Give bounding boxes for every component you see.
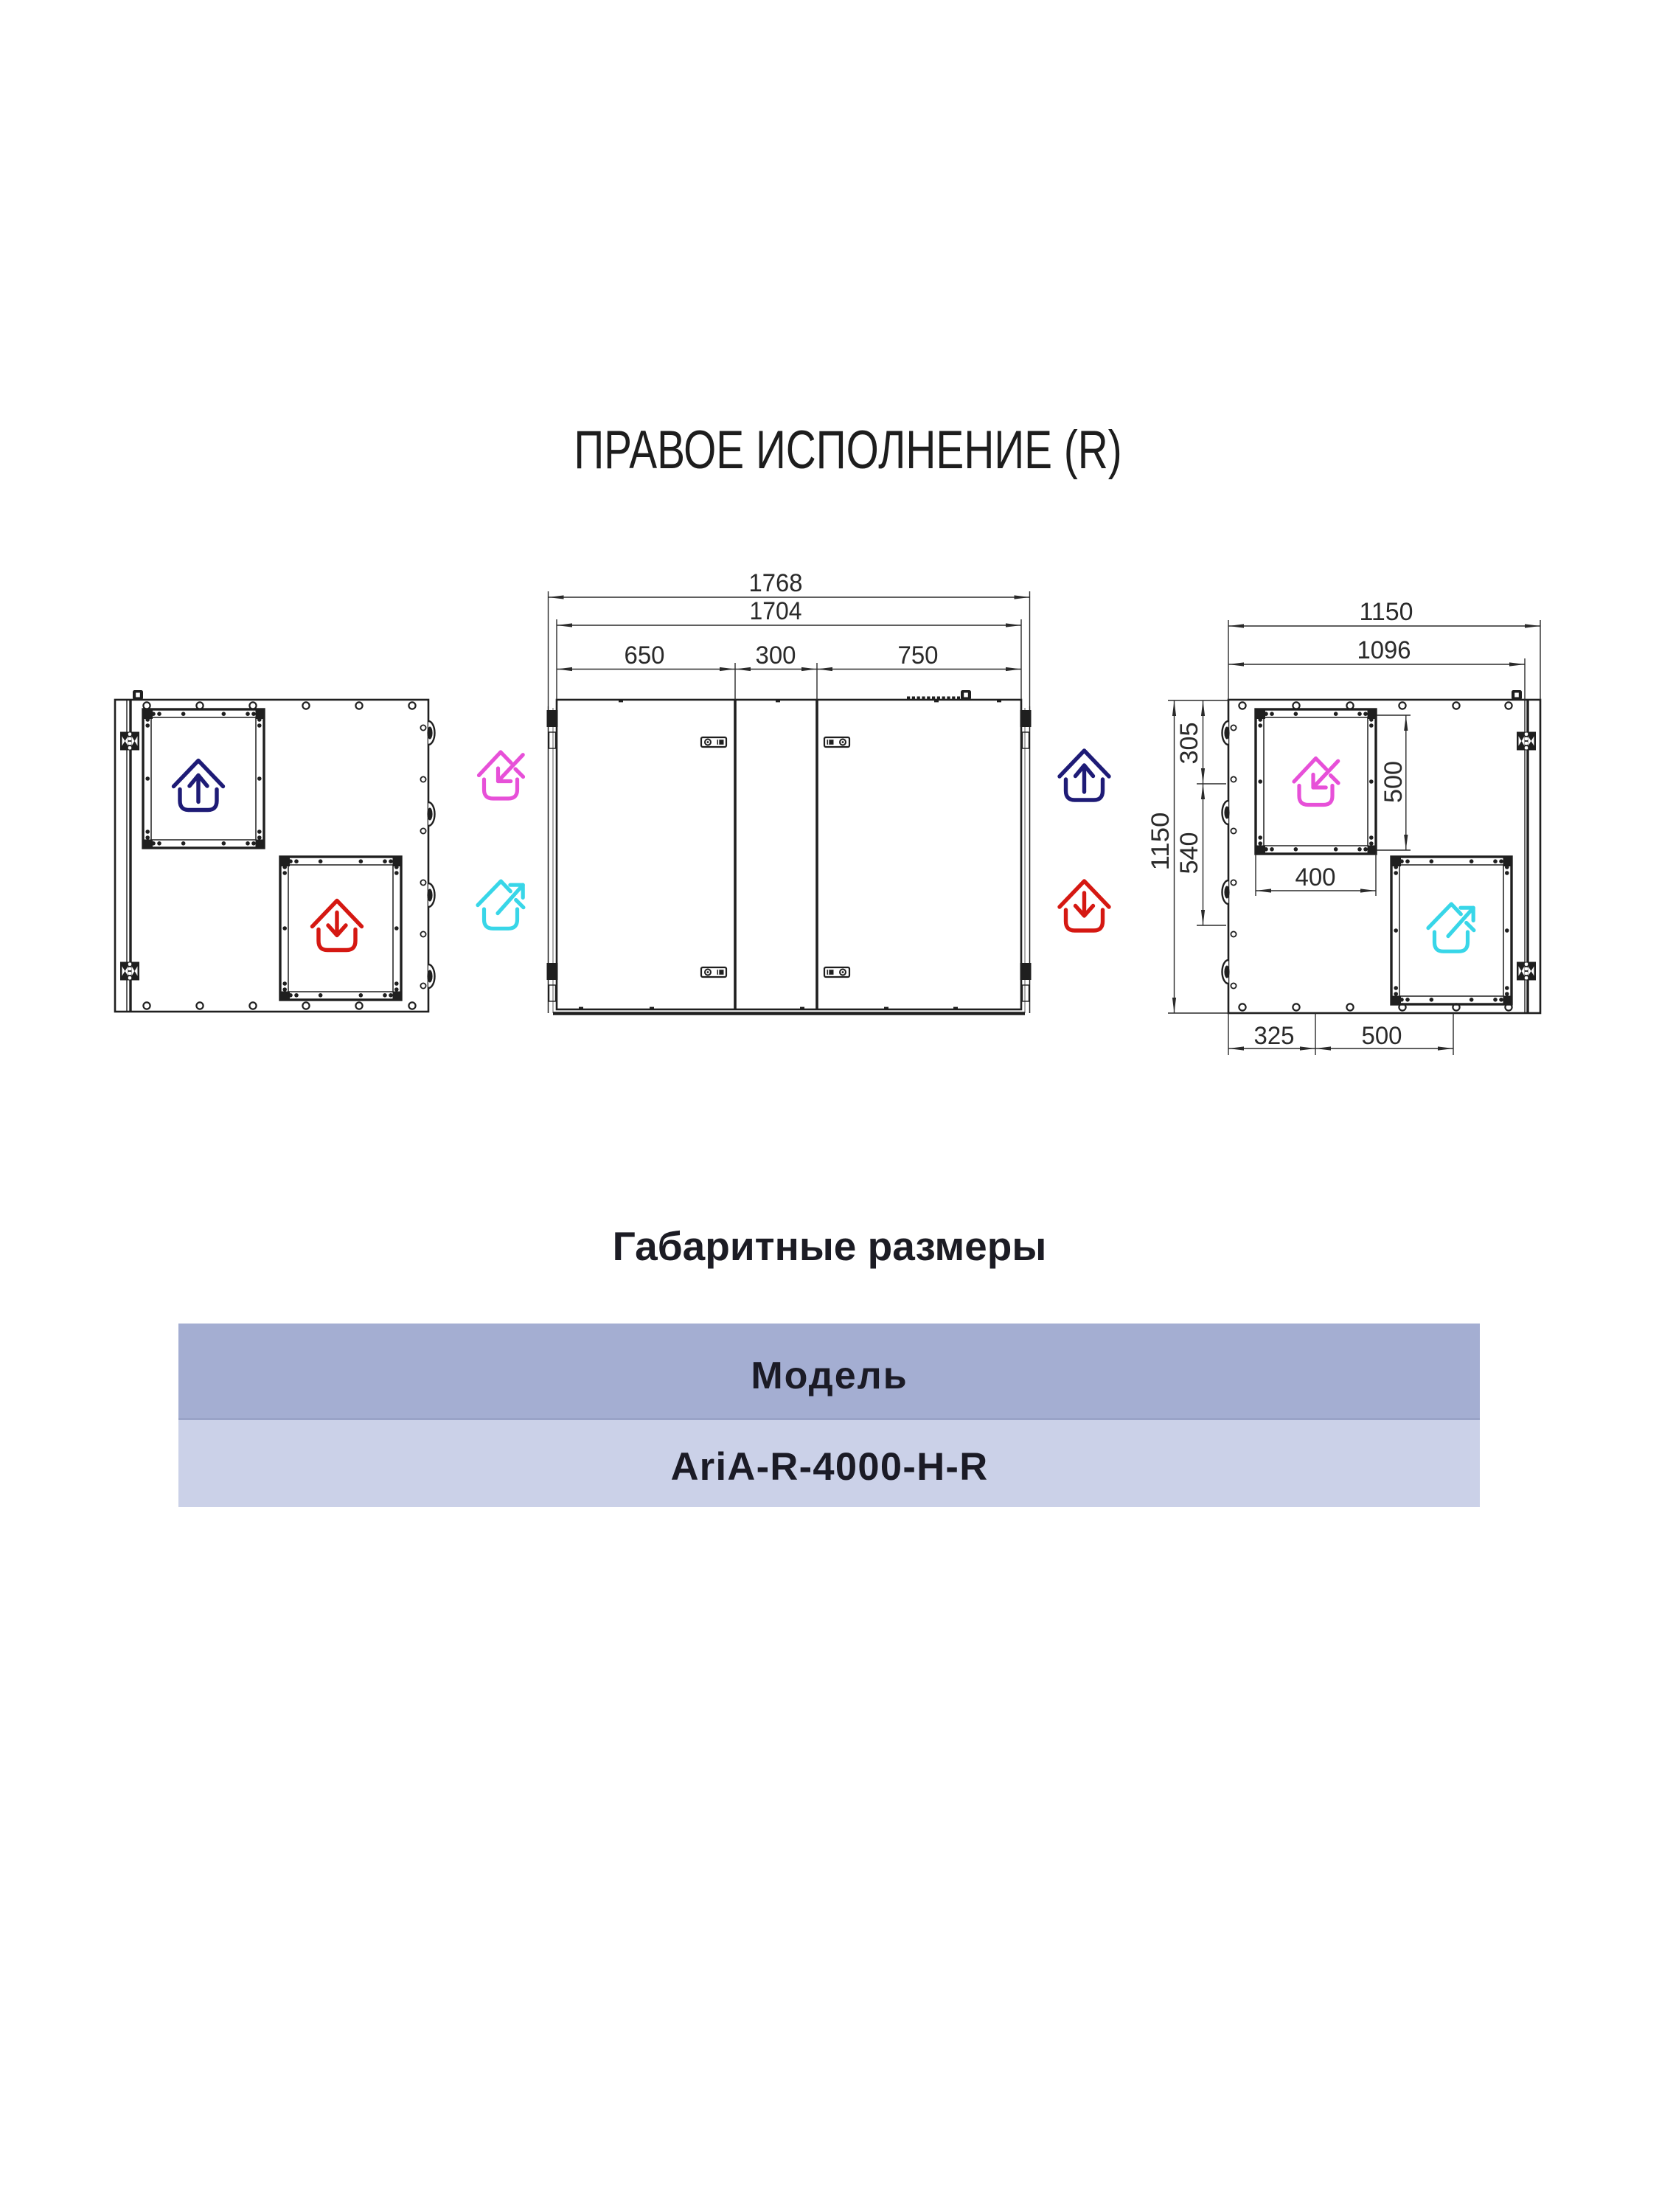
svg-text:750: 750 (898, 641, 939, 669)
svg-text:400: 400 (1295, 863, 1336, 891)
svg-text:500: 500 (1380, 761, 1408, 803)
svg-text:540: 540 (1175, 832, 1203, 874)
svg-text:1704: 1704 (750, 597, 802, 625)
svg-text:325: 325 (1254, 1022, 1295, 1050)
svg-text:1150: 1150 (1360, 598, 1413, 626)
svg-text:300: 300 (756, 641, 796, 669)
svg-text:1768: 1768 (749, 569, 803, 597)
svg-text:500: 500 (1362, 1022, 1402, 1050)
svg-text:650: 650 (625, 641, 665, 669)
svg-text:305: 305 (1175, 723, 1203, 765)
svg-text:1150: 1150 (1147, 813, 1175, 871)
svg-text:1096: 1096 (1357, 636, 1411, 664)
